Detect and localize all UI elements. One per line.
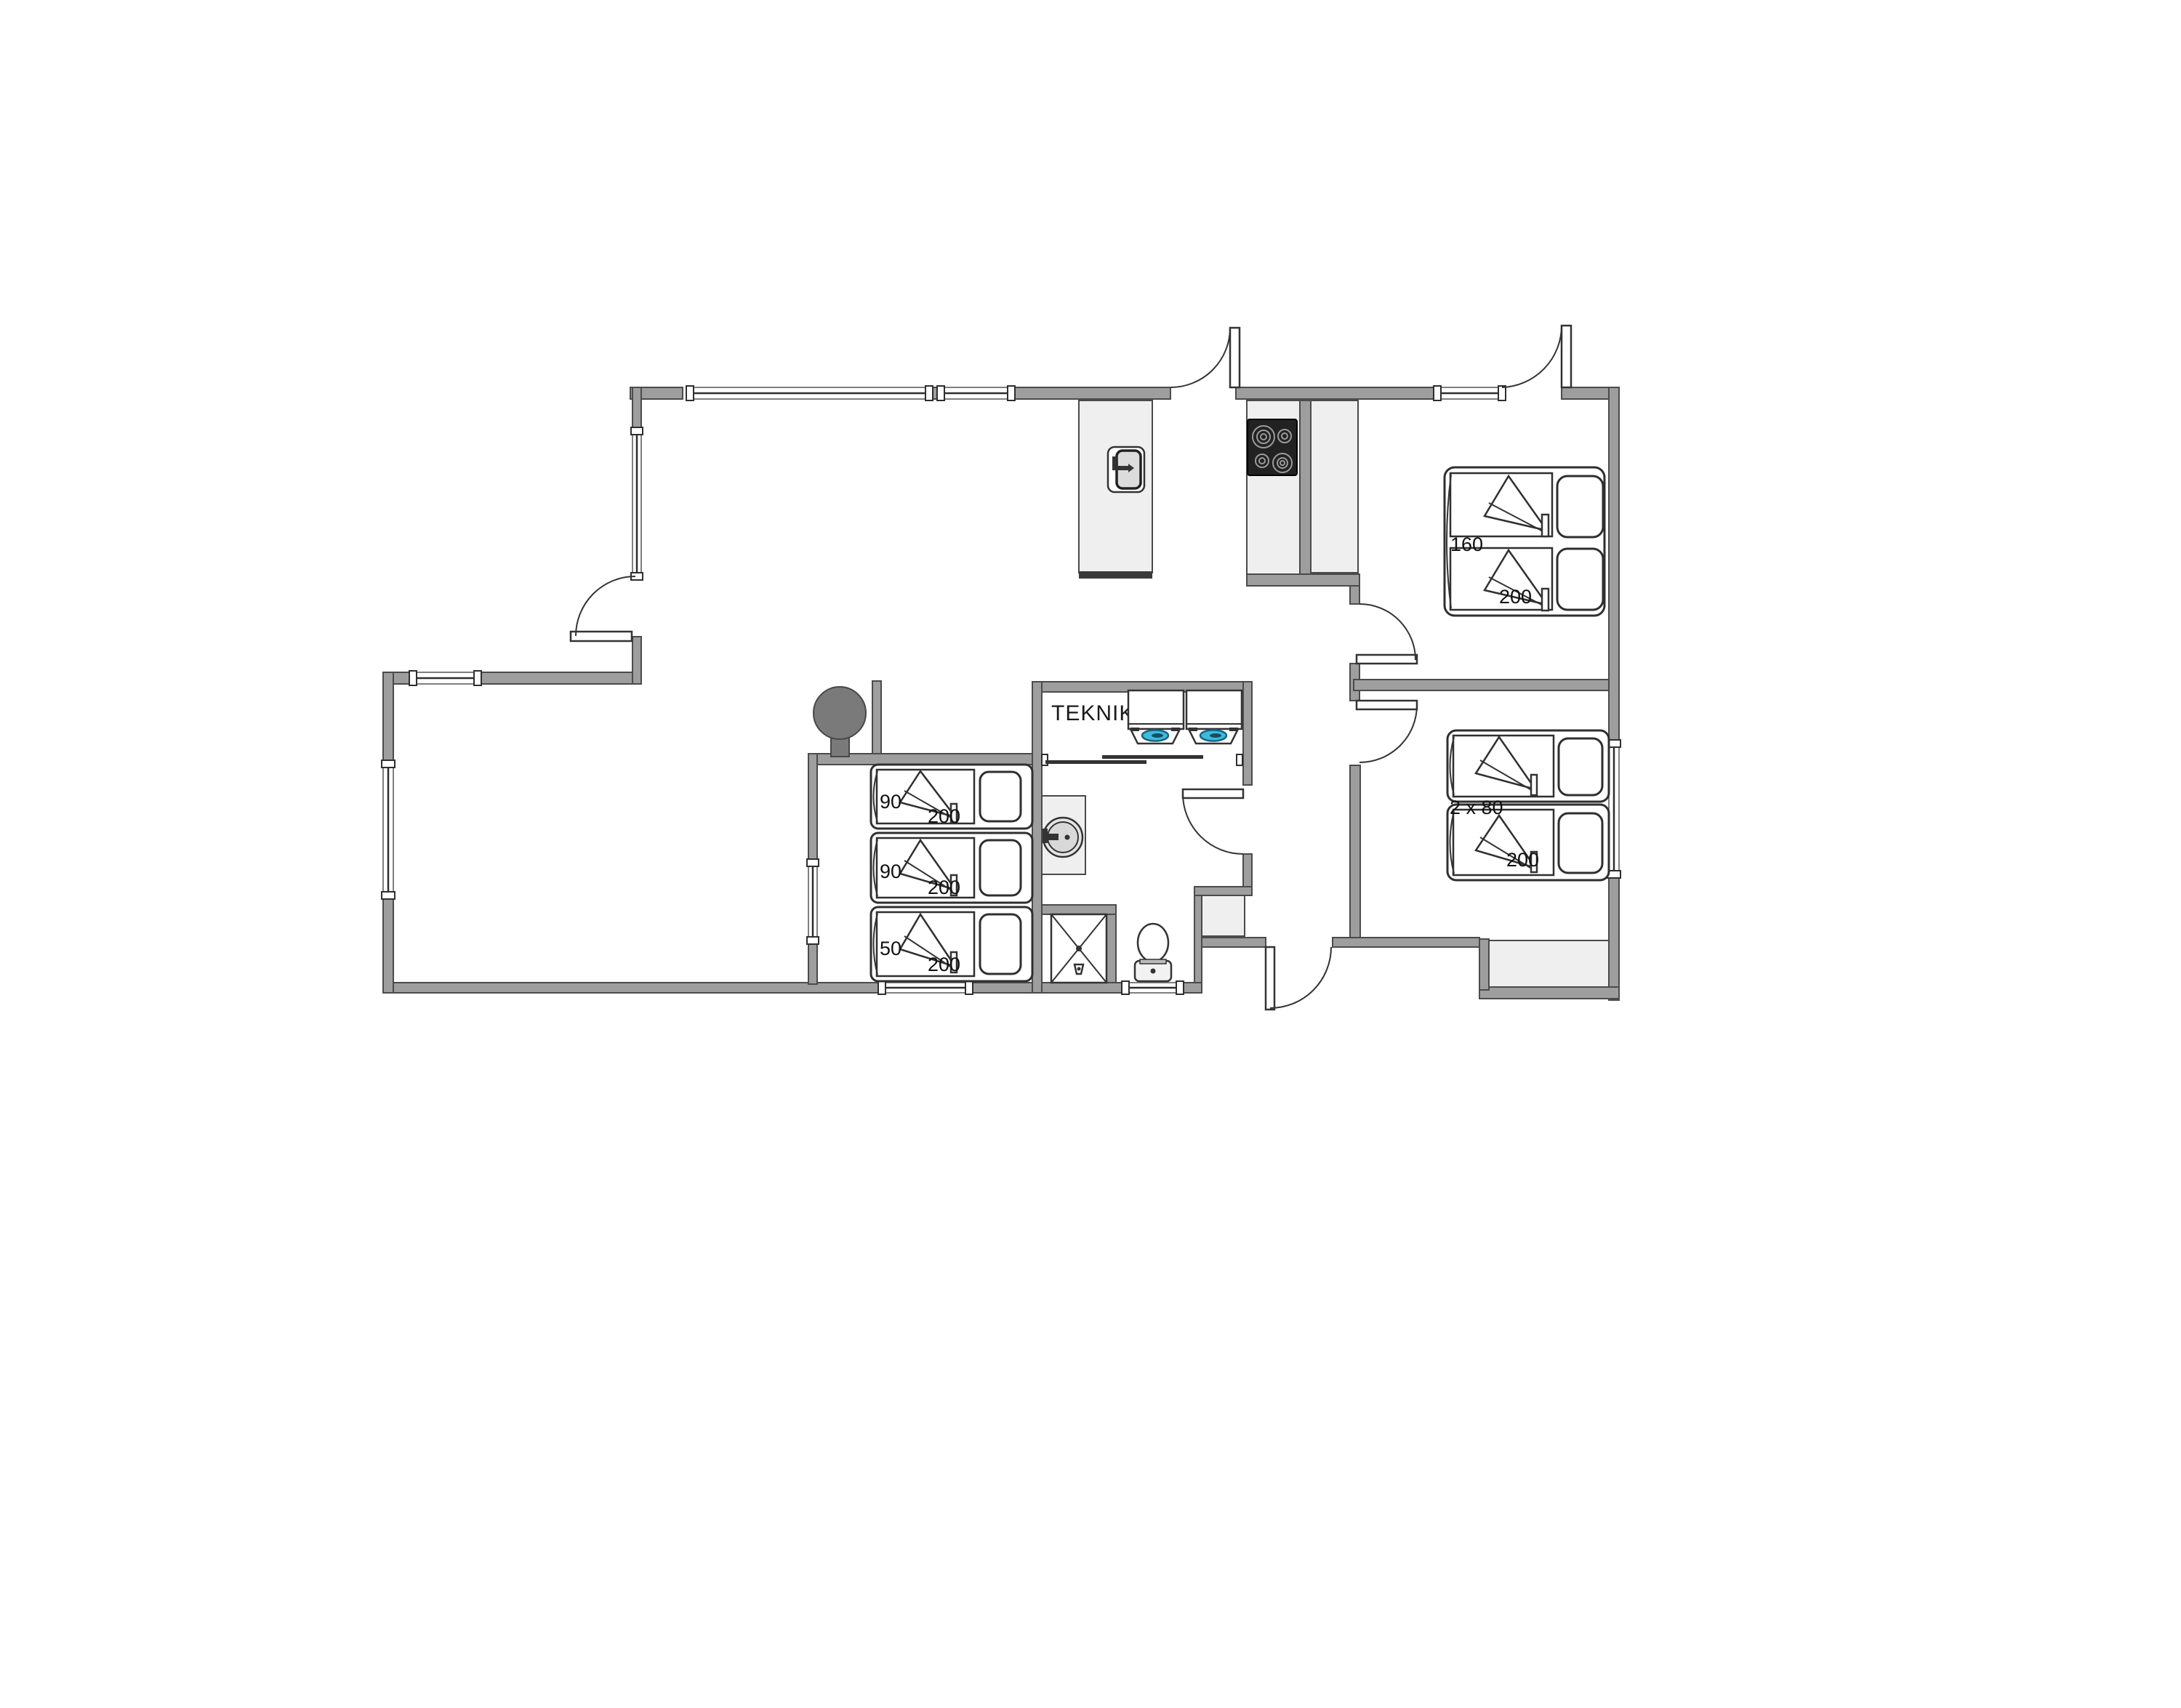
bunk-bottom-width-label: 50 bbox=[880, 938, 901, 959]
window bbox=[1434, 386, 1506, 400]
kitchen-sink-icon bbox=[1108, 447, 1144, 492]
west-wing-north-wall bbox=[478, 672, 641, 684]
terrace-wall-segment bbox=[632, 387, 641, 431]
bunk-top-length-label: 200 bbox=[928, 805, 960, 827]
bathroom-west-wall bbox=[1032, 682, 1042, 993]
bedroom1-exterior-door bbox=[1502, 326, 1571, 387]
hall-wardrobe bbox=[1202, 895, 1245, 936]
closet-west-wall bbox=[1479, 939, 1489, 990]
north-wall-segment bbox=[1011, 387, 1170, 399]
window bbox=[631, 427, 643, 580]
twin-bed-top bbox=[1447, 730, 1609, 802]
bedroom2: 2 x 80 200 bbox=[1447, 730, 1609, 880]
window bbox=[1122, 981, 1184, 994]
bathroom-east-wall bbox=[1243, 682, 1252, 785]
window bbox=[807, 859, 819, 944]
hall-niche-wall bbox=[1194, 887, 1252, 895]
bunk-middle-width-label: 90 bbox=[880, 861, 901, 882]
cooktop-icon bbox=[1248, 419, 1297, 475]
washing-machine-icon bbox=[1128, 690, 1184, 744]
toilet-icon bbox=[1135, 924, 1171, 981]
hall-east-wall-stub bbox=[1350, 586, 1359, 604]
twin-beds-width-label: 2 x 80 bbox=[1450, 797, 1503, 818]
terrace-door bbox=[571, 576, 635, 641]
east-wall-segment bbox=[1609, 387, 1619, 744]
window bbox=[937, 386, 1015, 400]
kitchen-island-edge bbox=[1079, 571, 1152, 579]
bathroom-se-wall bbox=[1194, 895, 1202, 983]
hall-east-wall bbox=[1350, 765, 1360, 938]
window bbox=[686, 386, 933, 400]
double-bed-length-label: 200 bbox=[1499, 586, 1532, 608]
window bbox=[409, 671, 481, 685]
bedroom-divider-wall bbox=[1354, 680, 1609, 690]
kitchen-exterior-door bbox=[1170, 328, 1240, 387]
double-bed: 160 200 bbox=[1445, 467, 1604, 616]
window bbox=[878, 981, 973, 994]
entrance-door bbox=[1266, 947, 1331, 1010]
shower-wall-top bbox=[1042, 905, 1116, 914]
west-wall-segment bbox=[383, 896, 393, 993]
shower-icon bbox=[1051, 914, 1106, 983]
east-wall-segment bbox=[1609, 874, 1619, 1000]
living-room-wall-stub bbox=[872, 681, 881, 754]
dryer-icon bbox=[1186, 690, 1242, 744]
bedroom1: 160 200 bbox=[1445, 467, 1604, 616]
double-bed-width-label: 160 bbox=[1450, 533, 1483, 555]
entry-closet bbox=[1489, 940, 1609, 987]
bunkroom-west-wall bbox=[808, 940, 817, 984]
bunkroom: 90 200 90 200 50 bbox=[871, 765, 1032, 981]
shower-wall-right bbox=[1106, 914, 1116, 983]
living-room bbox=[814, 687, 866, 757]
bathroom bbox=[1042, 796, 1171, 983]
south-wall-segment bbox=[969, 983, 1125, 993]
bathroom-east-wall bbox=[1243, 854, 1252, 887]
teknik-sliding-door bbox=[1042, 754, 1242, 765]
kitchen bbox=[1079, 400, 1358, 579]
kitchen-bedroom-wall bbox=[1300, 400, 1311, 574]
terrace-wall-segment bbox=[632, 637, 641, 684]
window bbox=[382, 760, 395, 899]
bunk-bed-middle: 90 200 bbox=[871, 833, 1032, 903]
south-wall-segment bbox=[383, 983, 882, 993]
twin-beds-length-label: 200 bbox=[1506, 849, 1539, 871]
floorplan-page: TEKNIK bbox=[0, 0, 2181, 1708]
teknik-label: TEKNIK bbox=[1051, 701, 1134, 725]
wood-stove-icon bbox=[814, 687, 866, 757]
bunk-bottom-length-label: 200 bbox=[928, 954, 960, 975]
bunk-bed-top: 90 200 bbox=[871, 765, 1032, 829]
bedroom1-wardrobe bbox=[1311, 400, 1358, 573]
bathroom-sink-icon bbox=[1043, 818, 1083, 857]
west-wall-segment bbox=[383, 672, 393, 765]
north-wall-segment bbox=[1236, 387, 1437, 399]
bunkroom-west-wall bbox=[808, 754, 817, 863]
bunk-bed-bottom: 50 200 bbox=[871, 907, 1032, 981]
bedroom1-door bbox=[1357, 604, 1417, 664]
bedroom2-door bbox=[1357, 701, 1417, 762]
bathroom-door bbox=[1183, 789, 1243, 854]
teknik-room: TEKNIK bbox=[1051, 690, 1242, 744]
floorplan-drawing: TEKNIK bbox=[0, 0, 2181, 1708]
hall-south-wall bbox=[1202, 938, 1266, 947]
bunk-top-width-label: 90 bbox=[880, 791, 901, 813]
hall-south-wall bbox=[1333, 938, 1479, 947]
kitchen-end-wall bbox=[1247, 574, 1359, 586]
bunk-middle-length-label: 200 bbox=[928, 877, 960, 898]
south-wall-closet bbox=[1479, 987, 1619, 999]
